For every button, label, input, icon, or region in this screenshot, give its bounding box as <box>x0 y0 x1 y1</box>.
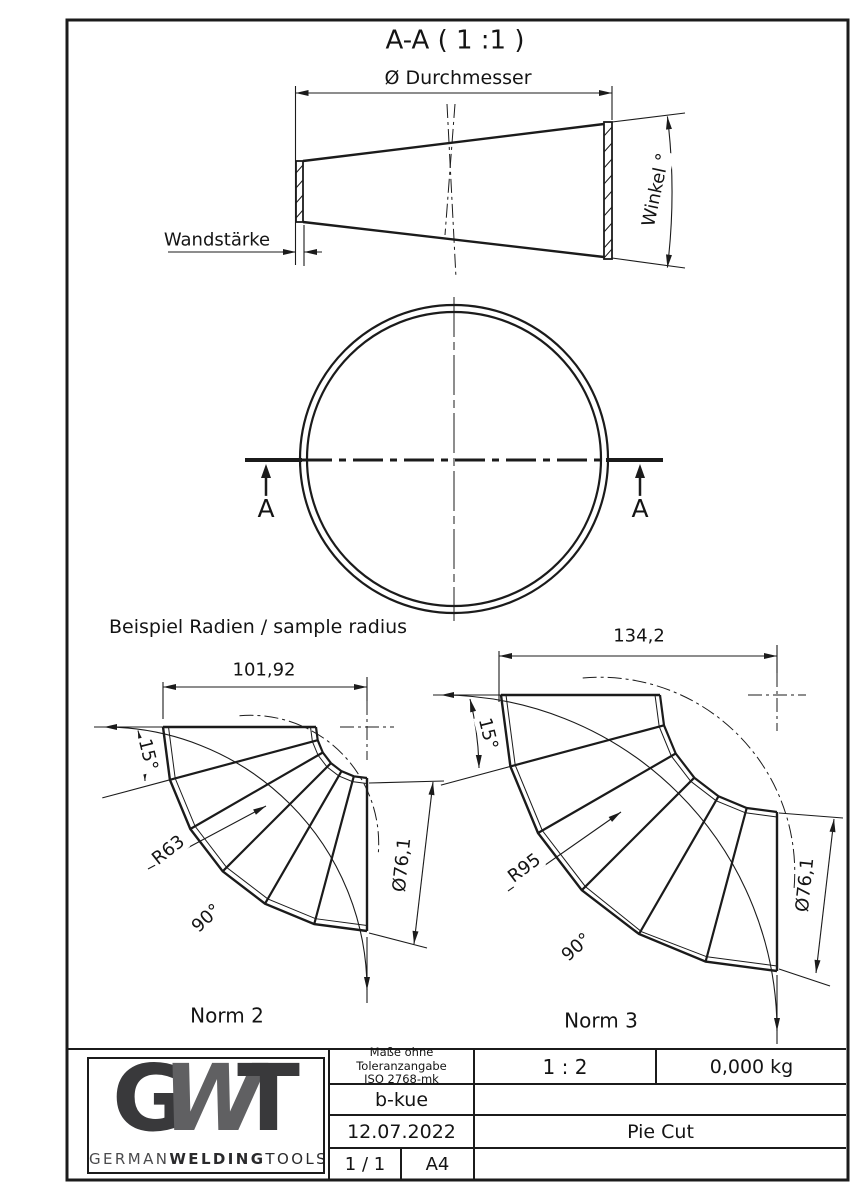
norm2-joint-lines <box>170 740 354 924</box>
pie-cut-norm3 <box>433 645 843 1044</box>
title-block: G W T GERMANWELDINGTOOLS Maße ohne Toler… <box>67 1048 846 1178</box>
tolerance-line1: Maße ohne Toleranzangabe <box>330 1046 473 1074</box>
logo-cell: G W T GERMANWELDINGTOOLS <box>67 1050 330 1180</box>
norm2-dia-dimline <box>414 782 433 944</box>
tolerance-cell: Maße ohne Toleranzangabe ISO 2768-mk <box>330 1050 475 1083</box>
section-letter-right: A <box>629 496 650 522</box>
cone-right-wall-hatch <box>604 127 612 258</box>
norm3-dia-ext-bottom <box>779 969 830 986</box>
company-logo: G W T GERMANWELDINGTOOLS <box>87 1057 325 1174</box>
norm3-dia-ext-top <box>779 813 843 818</box>
wall-thickness-label: Wandstärke <box>162 232 272 251</box>
winkel-arc <box>667 116 672 267</box>
brand-tools: TOOLS <box>265 1150 325 1168</box>
brand-german: GERMAN <box>89 1150 169 1168</box>
samples-heading: Beispiel Radien / sample radius <box>107 618 409 638</box>
cone-centerline-2 <box>445 104 455 235</box>
drawing-linework <box>0 0 868 1199</box>
norm2-dia-ext-bottom <box>369 933 427 948</box>
norm2-width-dim: 101,92 <box>231 662 298 681</box>
logo-letter-t: T <box>237 1061 300 1136</box>
circle-view <box>245 297 663 621</box>
empty-cell-row4 <box>475 1149 846 1180</box>
sheet-frame <box>67 20 848 1180</box>
cone-right-wall <box>604 122 612 259</box>
sheet-cell: 1 / 1 <box>330 1149 402 1180</box>
norm3-width-dim: 134,2 <box>611 628 667 647</box>
norm2-joint15-ext <box>102 780 170 798</box>
section-arrow-left-head <box>261 464 271 478</box>
cone-left-wall <box>296 161 303 222</box>
date-cell: 12.07.2022 <box>330 1116 475 1147</box>
brand-wordmark: GERMANWELDINGTOOLS <box>89 1150 323 1168</box>
winkel-ext-top <box>612 113 685 122</box>
drawing-sheet: A-A ( 1 :1 ) Ø Durchmesser Wandstärke Wi… <box>0 0 868 1199</box>
format-cell: A4 <box>402 1149 475 1180</box>
section-arrow-right-head <box>635 464 645 478</box>
gwt-logo-letters: G W T <box>112 1061 300 1136</box>
norm3-label: Norm 3 <box>562 1011 640 1032</box>
empty-cell-row2 <box>475 1085 846 1114</box>
norm2-label: Norm 2 <box>188 1006 266 1027</box>
diameter-dim-label: Ø Durchmesser <box>382 69 533 89</box>
section-view-title: A-A ( 1 :1 ) <box>383 27 526 54</box>
norm3-joint15-ext <box>441 766 511 785</box>
brand-welding: WELDING <box>169 1150 265 1168</box>
title-block-fields: Maße ohne Toleranzangabe ISO 2768-mk 1 :… <box>330 1050 846 1180</box>
section-letter-left: A <box>255 496 276 522</box>
cone-bottom-edge <box>303 222 604 257</box>
pie-cut-norm2 <box>94 677 444 1003</box>
cone-left-wall-hatch <box>296 165 303 218</box>
weight-cell: 0,000 kg <box>657 1050 846 1083</box>
author-cell: b-kue <box>330 1085 475 1114</box>
part-name-cell: Pie Cut <box>475 1116 846 1147</box>
norm3-dia-dimline <box>816 819 834 973</box>
scale-cell: 1 : 2 <box>475 1050 657 1083</box>
winkel-ext-bottom <box>612 258 685 268</box>
